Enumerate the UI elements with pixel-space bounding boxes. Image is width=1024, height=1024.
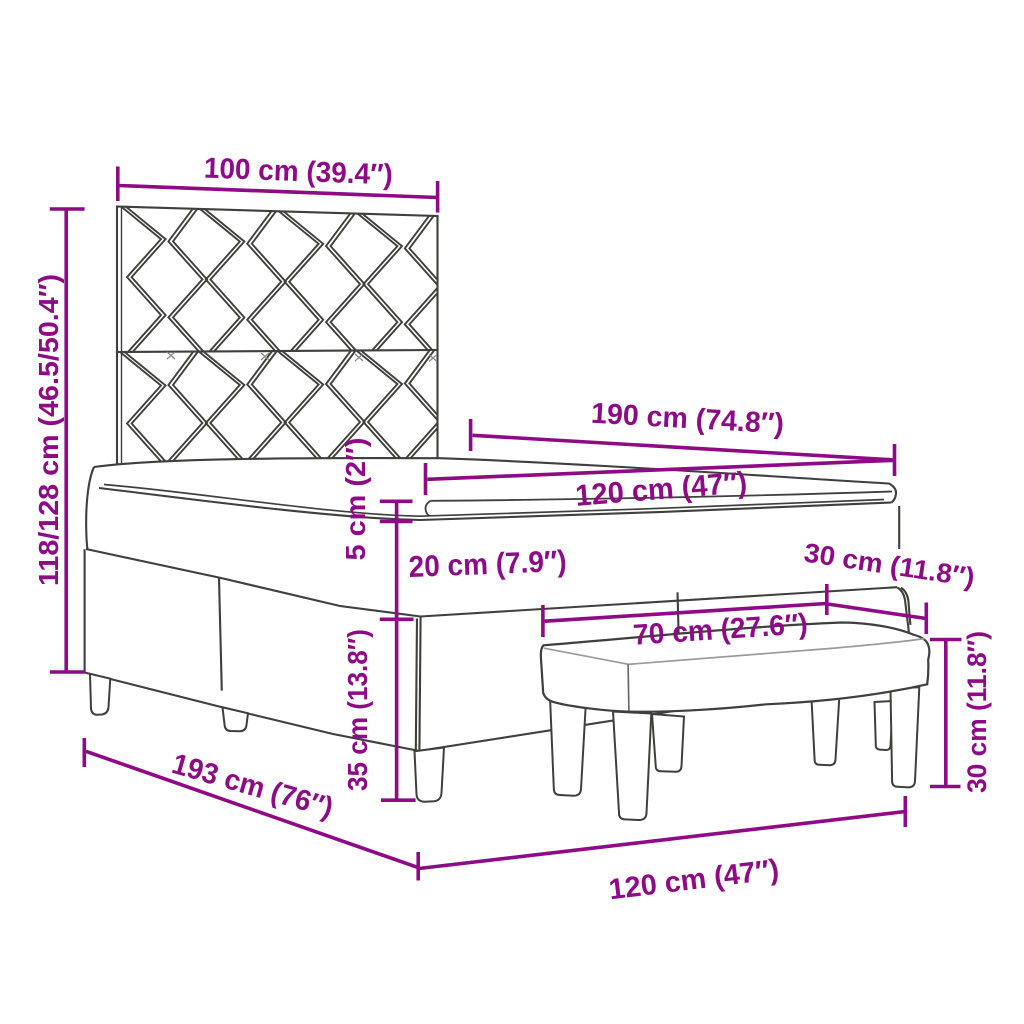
svg-text:118/128 cm (46.5/50.4″): 118/128 cm (46.5/50.4″) <box>33 274 64 586</box>
svg-text:20 cm (7.9″): 20 cm (7.9″) <box>408 545 567 584</box>
svg-text:5 cm (2″): 5 cm (2″) <box>340 438 371 561</box>
svg-text:35 cm (13.8″): 35 cm (13.8″) <box>342 629 373 791</box>
svg-text:30 cm (11.8″): 30 cm (11.8″) <box>962 631 992 793</box>
